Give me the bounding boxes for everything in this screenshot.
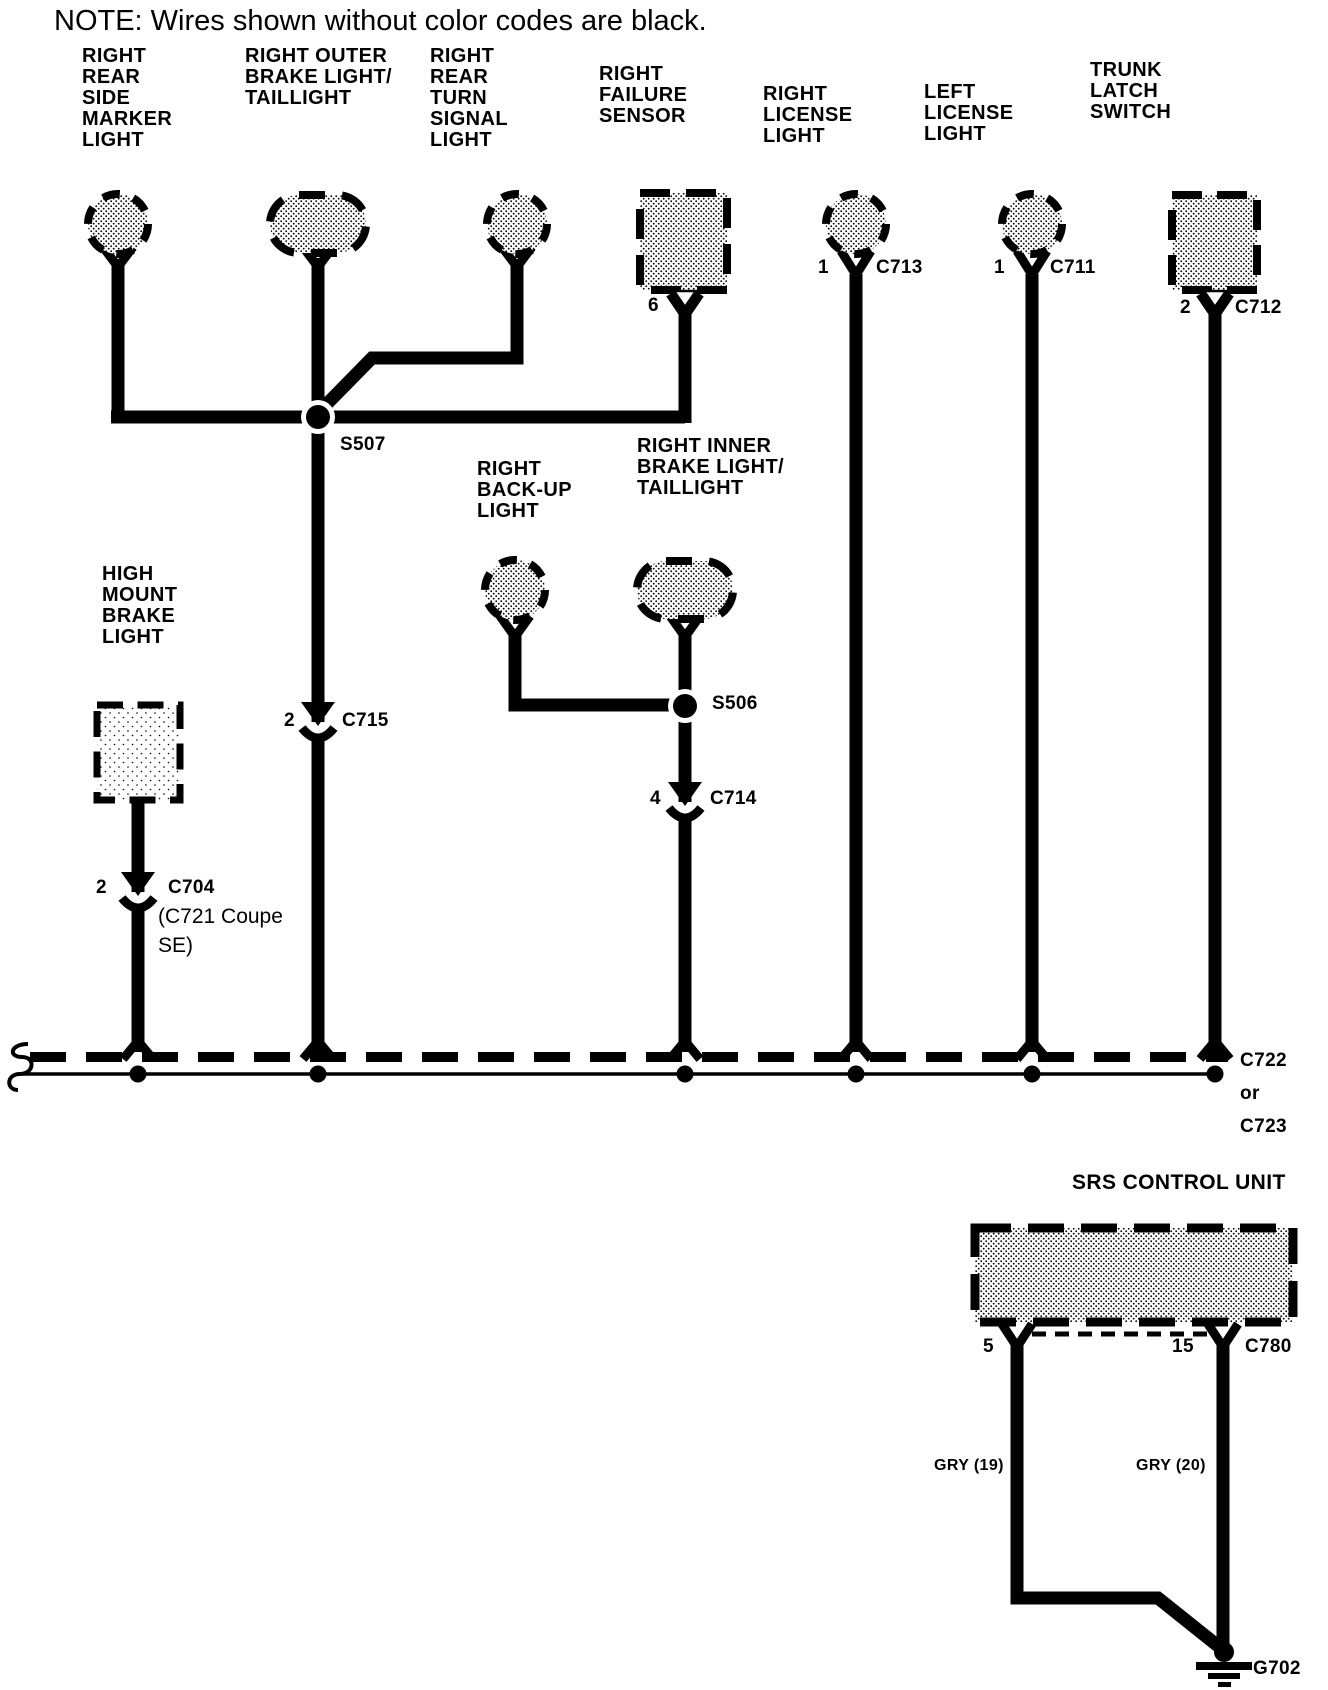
pin-c715: 2 [284,710,295,732]
ground-symbol-icon [1196,1642,1252,1687]
connector-c714: C714 [710,788,757,810]
connector-c711: C711 [1050,257,1096,279]
pin-c780-5: 5 [983,1336,994,1358]
connector-c704-variant-note: (C721 Coupe SE) [158,902,283,960]
connector-c714-icon [668,782,702,818]
connector-c715: C715 [342,710,389,732]
pin-c711: 1 [994,257,1005,279]
box-pin-notches [674,291,1226,307]
splice-s506-label: S506 [712,693,758,715]
pin-c714: 4 [650,788,661,810]
diagram-canvas [0,0,1328,1690]
bus-continuation-squiggle [9,1044,31,1090]
connector-c715-icon [301,702,335,738]
wiring-diagram: NOTE: Wires shown without color codes ar… [0,0,1328,1690]
pin-c713: 1 [818,257,829,279]
label-right-license-light: RIGHT LICENSE LIGHT [763,84,852,147]
label-trunk-latch-switch: TRUNK LATCH SWITCH [1090,60,1171,123]
splice-s507-dot [306,405,330,429]
wire-turn-signal [316,260,517,415]
wire-backup-light [515,634,685,705]
wire-color-gry20: GRY (20) [1136,1457,1206,1475]
pin-c704: 2 [96,877,107,899]
label-right-rear-turn-signal-light: RIGHT REAR TURN SIGNAL LIGHT [430,46,508,151]
label-right-failure-sensor: RIGHT FAILURE SENSOR [599,64,687,127]
high-mount-box-icon [97,705,180,800]
side-marker-lamp-icon [88,194,148,254]
trunk-latch-box-icon [1172,195,1257,290]
outer-brake-lamp-icon [270,195,366,253]
label-right-back-up-light: RIGHT BACK-UP LIGHT [477,459,572,522]
pin-c780-15: 15 [1172,1336,1194,1358]
connector-c712: C712 [1235,297,1282,319]
backup-lamp-icon [485,560,545,620]
splice-s507-label: S507 [340,434,386,456]
failure-sensor-box-icon [640,193,727,290]
ground-g702-label: G702 [1253,1658,1301,1680]
connector-c780: C780 [1245,1336,1292,1358]
wire-srs-gry19 [1017,1344,1223,1650]
label-high-mount-brake-light: HIGH MOUNT BRAKE LIGHT [102,564,177,648]
label-left-license-light: LEFT LICENSE LIGHT [924,82,1013,145]
note-text: NOTE: Wires shown without color codes ar… [54,4,707,38]
label-srs-control-unit: SRS CONTROL UNIT [1072,1172,1286,1193]
inner-brake-lamp-icon [637,561,733,619]
bus-connector-label: C722 or C723 [1240,1044,1287,1143]
splice-s506-dot [673,694,697,718]
label-right-rear-side-marker-light: RIGHT REAR SIDE MARKER LIGHT [82,46,172,151]
left-license-lamp-icon [1002,194,1062,254]
wire-color-gry19: GRY (19) [934,1457,1004,1475]
connector-c704-icon [121,872,155,908]
pin-c712: 2 [1180,297,1191,319]
label-right-outer-brake-light: RIGHT OUTER BRAKE LIGHT/ TAILLIGHT [245,46,392,109]
ground-bus [9,1041,1230,1090]
label-right-inner-brake-light: RIGHT INNER BRAKE LIGHT/ TAILLIGHT [637,436,784,499]
srs-control-unit-box-icon [975,1228,1293,1322]
connector-c713: C713 [876,257,923,279]
pin-failure-sensor: 6 [648,295,659,317]
turn-signal-lamp-icon [487,194,547,254]
connector-c704: C704 [168,877,215,899]
right-license-lamp-icon [826,194,886,254]
